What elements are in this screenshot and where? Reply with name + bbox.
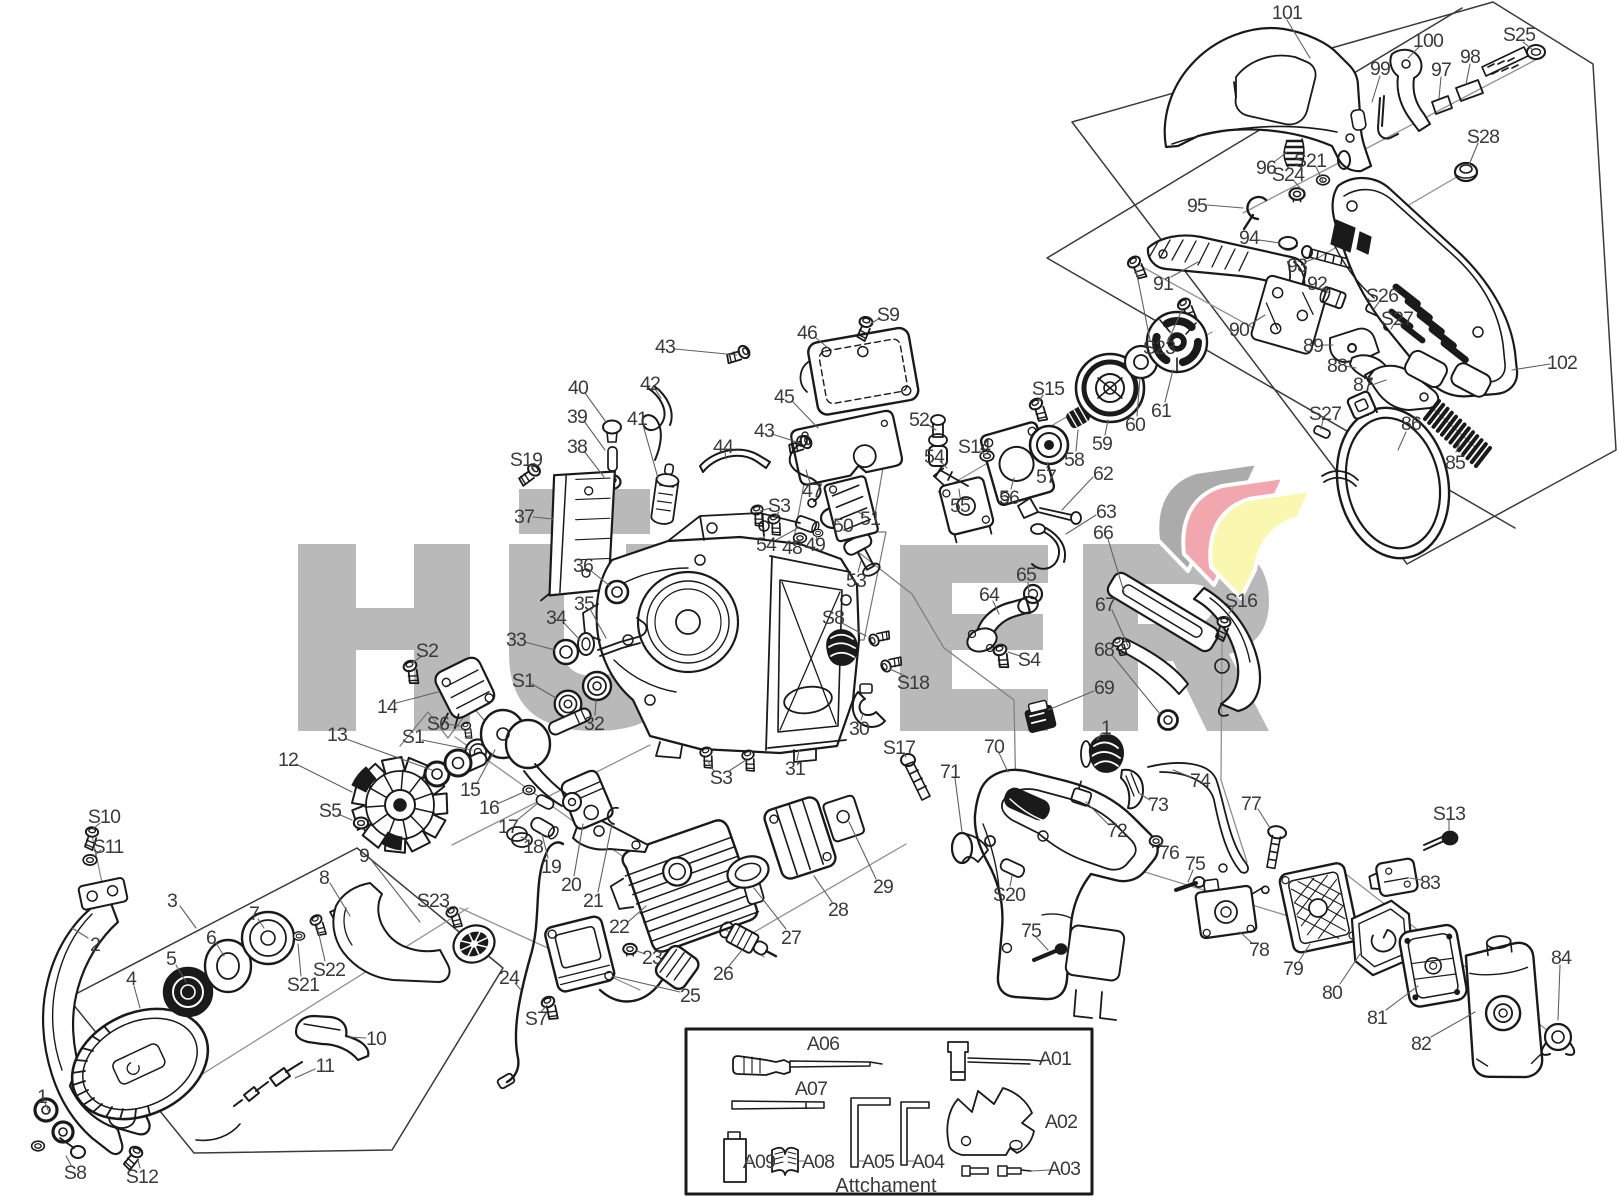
- svg-text:S27: S27: [1309, 403, 1341, 425]
- svg-text:72: 72: [1107, 820, 1127, 842]
- svg-text:10: 10: [366, 1028, 387, 1050]
- svg-text:S22: S22: [313, 959, 345, 981]
- svg-text:23: 23: [642, 947, 662, 969]
- svg-text:54: 54: [924, 446, 945, 468]
- svg-text:S19: S19: [510, 449, 542, 471]
- svg-text:55: 55: [950, 495, 971, 517]
- svg-text:42: 42: [640, 373, 660, 395]
- svg-text:32: 32: [584, 713, 604, 735]
- svg-text:98: 98: [1460, 46, 1480, 68]
- svg-text:97: 97: [1431, 59, 1451, 81]
- svg-text:S25: S25: [1503, 24, 1536, 46]
- svg-text:6: 6: [206, 927, 216, 949]
- svg-text:S13: S13: [1433, 803, 1465, 825]
- svg-text:53: 53: [846, 570, 866, 592]
- svg-text:39: 39: [567, 406, 587, 428]
- svg-text:76: 76: [1159, 842, 1179, 864]
- svg-text:17: 17: [498, 816, 518, 838]
- svg-text:47: 47: [802, 480, 822, 502]
- svg-text:S11: S11: [93, 836, 124, 858]
- svg-text:S1: S1: [512, 670, 534, 692]
- svg-text:S9: S9: [877, 304, 899, 326]
- svg-text:43: 43: [754, 420, 774, 442]
- svg-text:S4: S4: [1018, 649, 1041, 671]
- svg-text:8: 8: [319, 867, 329, 889]
- svg-text:28: 28: [828, 899, 848, 921]
- svg-text:75: 75: [1185, 853, 1206, 875]
- svg-text:82: 82: [1411, 1033, 1431, 1055]
- svg-text:66: 66: [1093, 522, 1113, 544]
- svg-text:63: 63: [1096, 501, 1116, 523]
- svg-text:48: 48: [782, 537, 802, 559]
- svg-text:77: 77: [1241, 793, 1261, 815]
- svg-text:35: 35: [574, 593, 595, 615]
- svg-text:102: 102: [1547, 352, 1577, 374]
- svg-text:20: 20: [561, 874, 582, 896]
- svg-text:60: 60: [1125, 414, 1146, 436]
- svg-text:70: 70: [984, 736, 1005, 758]
- svg-text:27: 27: [781, 927, 801, 949]
- svg-text:64: 64: [979, 584, 1000, 606]
- svg-text:12: 12: [278, 749, 298, 771]
- svg-text:A08: A08: [802, 1151, 834, 1173]
- svg-text:19: 19: [541, 856, 561, 878]
- svg-text:58: 58: [1064, 449, 1084, 471]
- svg-text:S6: S6: [427, 713, 449, 735]
- svg-text:84: 84: [1551, 947, 1572, 969]
- svg-text:61: 61: [1151, 400, 1171, 422]
- svg-text:90: 90: [1229, 319, 1250, 341]
- svg-text:S5: S5: [319, 800, 342, 822]
- svg-text:34: 34: [546, 607, 567, 629]
- svg-text:38: 38: [567, 436, 587, 458]
- svg-text:30: 30: [849, 718, 870, 740]
- svg-text:Attchament: Attchament: [835, 1175, 937, 1196]
- svg-text:62: 62: [1093, 463, 1113, 485]
- svg-text:S14: S14: [958, 436, 991, 458]
- svg-text:S8: S8: [822, 607, 844, 629]
- svg-text:S10: S10: [88, 806, 121, 828]
- svg-text:95: 95: [1187, 195, 1208, 217]
- svg-text:S23: S23: [417, 890, 449, 912]
- svg-text:81: 81: [1367, 1007, 1387, 1029]
- svg-text:43: 43: [655, 336, 675, 358]
- svg-text:74: 74: [1190, 770, 1211, 792]
- svg-text:89: 89: [1303, 335, 1323, 357]
- svg-text:26: 26: [713, 963, 733, 985]
- svg-text:S16: S16: [1225, 590, 1257, 612]
- svg-text:5: 5: [166, 948, 177, 970]
- svg-text:S21: S21: [1294, 150, 1326, 172]
- svg-text:93: 93: [1287, 255, 1307, 277]
- svg-text:29: 29: [873, 876, 893, 898]
- svg-text:S12: S12: [126, 1166, 158, 1188]
- svg-text:15: 15: [460, 779, 481, 801]
- svg-text:A07: A07: [795, 1078, 827, 1100]
- svg-text:24: 24: [499, 967, 520, 989]
- svg-text:21: 21: [583, 890, 603, 912]
- svg-text:65: 65: [1016, 564, 1037, 586]
- svg-text:88: 88: [1327, 355, 1347, 377]
- svg-text:99: 99: [1370, 58, 1390, 80]
- svg-text:4: 4: [126, 968, 137, 990]
- svg-text:101: 101: [1272, 2, 1302, 24]
- svg-text:S3: S3: [710, 767, 732, 789]
- svg-text:54: 54: [756, 534, 777, 556]
- svg-text:46: 46: [797, 322, 817, 344]
- svg-text:71: 71: [940, 761, 960, 783]
- svg-text:50: 50: [833, 515, 854, 537]
- svg-text:S28: S28: [1467, 126, 1499, 148]
- svg-text:S8: S8: [64, 1162, 86, 1184]
- svg-text:69: 69: [1094, 677, 1114, 699]
- svg-text:2: 2: [90, 934, 100, 956]
- svg-text:S2: S2: [416, 640, 438, 662]
- svg-text:44: 44: [713, 436, 734, 458]
- svg-text:85: 85: [1445, 452, 1466, 474]
- svg-text:80: 80: [1322, 982, 1343, 1004]
- svg-text:41: 41: [627, 408, 647, 430]
- svg-text:9: 9: [359, 845, 369, 867]
- svg-text:92: 92: [1307, 273, 1327, 295]
- svg-text:A03: A03: [1048, 1158, 1080, 1180]
- svg-text:40: 40: [568, 377, 589, 399]
- svg-text:94: 94: [1239, 227, 1260, 249]
- svg-text:68: 68: [1094, 639, 1114, 661]
- svg-text:51: 51: [860, 508, 880, 530]
- svg-text:100: 100: [1413, 30, 1444, 52]
- svg-text:14: 14: [377, 696, 398, 718]
- svg-text:A02: A02: [1045, 1111, 1077, 1133]
- svg-text:86: 86: [1401, 413, 1421, 435]
- svg-text:36: 36: [573, 555, 593, 577]
- svg-text:75: 75: [1021, 920, 1042, 942]
- svg-text:73: 73: [1148, 794, 1168, 816]
- svg-text:A09: A09: [743, 1151, 775, 1173]
- svg-text:59: 59: [1092, 433, 1112, 455]
- svg-text:S23: S23: [1143, 337, 1175, 359]
- svg-text:S18: S18: [897, 672, 929, 694]
- svg-text:57: 57: [1036, 466, 1056, 488]
- svg-text:33: 33: [506, 629, 526, 651]
- svg-text:78: 78: [1249, 939, 1269, 961]
- svg-text:S1: S1: [402, 726, 424, 748]
- svg-text:13: 13: [327, 724, 347, 746]
- svg-text:87: 87: [1353, 374, 1373, 396]
- svg-text:31: 31: [785, 758, 805, 780]
- svg-text:S20: S20: [993, 884, 1026, 906]
- svg-text:67: 67: [1095, 594, 1115, 616]
- svg-text:37: 37: [514, 506, 534, 528]
- svg-text:1: 1: [1101, 717, 1111, 739]
- svg-text:S17: S17: [883, 737, 915, 759]
- svg-text:56: 56: [999, 487, 1019, 509]
- svg-text:S26: S26: [1366, 285, 1398, 307]
- svg-text:18: 18: [523, 836, 543, 858]
- svg-text:52: 52: [909, 409, 929, 431]
- svg-text:A04: A04: [912, 1151, 945, 1173]
- svg-text:A01: A01: [1039, 1048, 1071, 1070]
- svg-text:A05: A05: [862, 1151, 895, 1173]
- svg-text:S3: S3: [768, 495, 790, 517]
- svg-text:1: 1: [37, 1086, 47, 1108]
- svg-text:83: 83: [1420, 872, 1440, 894]
- svg-text:45: 45: [774, 386, 795, 408]
- svg-text:11: 11: [316, 1055, 335, 1077]
- svg-text:49: 49: [805, 534, 825, 556]
- svg-text:79: 79: [1283, 958, 1303, 980]
- svg-text:22: 22: [609, 916, 629, 938]
- svg-text:A06: A06: [807, 1033, 839, 1055]
- svg-text:S7: S7: [525, 1008, 547, 1030]
- svg-text:25: 25: [680, 985, 701, 1007]
- svg-text:3: 3: [167, 890, 177, 912]
- svg-text:S15: S15: [1032, 378, 1065, 400]
- svg-text:7: 7: [249, 903, 259, 925]
- svg-text:16: 16: [479, 797, 499, 819]
- svg-text:91: 91: [1153, 273, 1173, 295]
- svg-text:S27: S27: [1381, 308, 1413, 330]
